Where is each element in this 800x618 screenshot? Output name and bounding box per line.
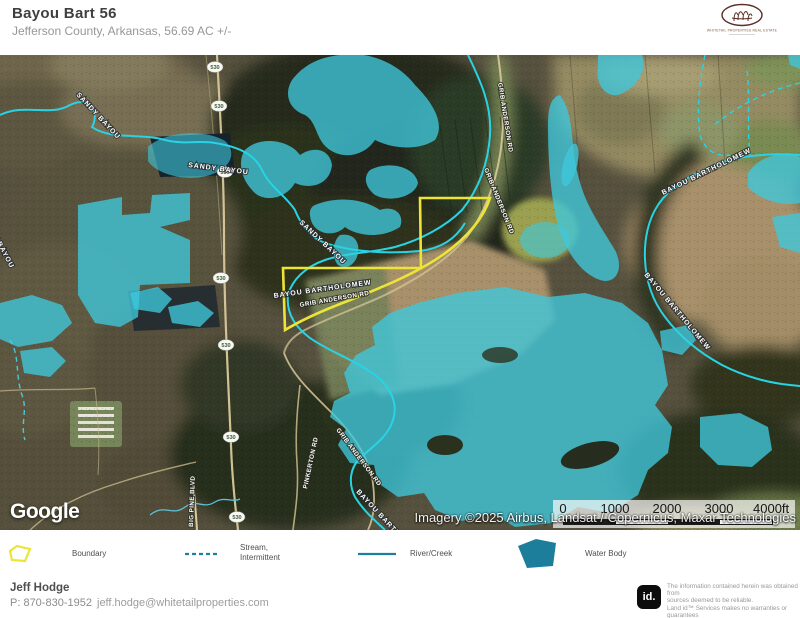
agent-name: Jeff Hodge [10,582,69,594]
highway-shield-530: 530 [223,432,239,443]
stream-legend-icon [185,551,219,557]
svg-text:530: 530 [221,343,230,349]
legend-label-stream-2: Intermittent [240,553,280,562]
highway-shield-530: 530 [207,62,223,73]
legend-label-boundary: Boundary [72,549,106,558]
boundary-legend-icon [8,543,34,565]
legend-label-river: River/Creek [410,549,452,558]
agent-phone: P: 870-830-1952 [10,597,92,609]
disclaimer-line: sources deemed to be reliable. [667,597,800,604]
legend-label-water-body: Water Body [585,549,627,558]
disclaimer-line: Land id™ Services makes no warranties or… [667,605,800,618]
highway-shield-530: 530 [213,273,229,284]
svg-text:530: 530 [216,276,225,282]
agent-email: jeff.hodge@whitetailproperties.com [97,597,269,609]
svg-text:530: 530 [214,104,223,110]
highway-shield-530: 530 [218,340,234,351]
river-legend-icon [358,551,396,557]
map-canvas: 530 530 530 530 530 [0,55,800,530]
legend: Boundary Stream, Intermittent River/Cree… [0,530,800,577]
logo-oval [722,5,762,26]
whitetail-properties-logo: WHITETAIL PROPERTIES REAL ESTATE [705,2,779,52]
svg-text:530: 530 [210,65,219,71]
page-subtitle: Jefferson County, Arkansas, 56.69 AC +/- [12,24,231,38]
water-body-legend-icon [515,537,560,570]
imagery-attribution: Imagery ©2025 Airbus, Landsat / Copernic… [415,510,797,525]
legend-label-stream-1: Stream, [240,543,268,552]
disclaimer-line: The information contained herein was obt… [667,583,800,597]
highway-shield-530: 530 [229,512,245,523]
svg-text:530: 530 [232,515,241,521]
footer: Jeff Hodge P: 870-830-1952 jeff.hodge@wh… [0,577,800,618]
highway-shield-530: 530 [211,101,227,112]
google-logo: Google [10,500,79,524]
land-id-logo: id. [637,585,661,609]
disclaimer: The information contained herein was obt… [667,583,800,618]
page: Bayou Bart 56 Jefferson County, Arkansas… [0,0,800,618]
page-title: Bayou Bart 56 [12,5,117,22]
svg-text:530: 530 [226,435,235,441]
brand-rule [729,34,755,35]
brand-text: WHITETAIL PROPERTIES REAL ESTATE [707,29,778,33]
satellite-imagery: 530 530 530 530 530 [0,55,800,530]
